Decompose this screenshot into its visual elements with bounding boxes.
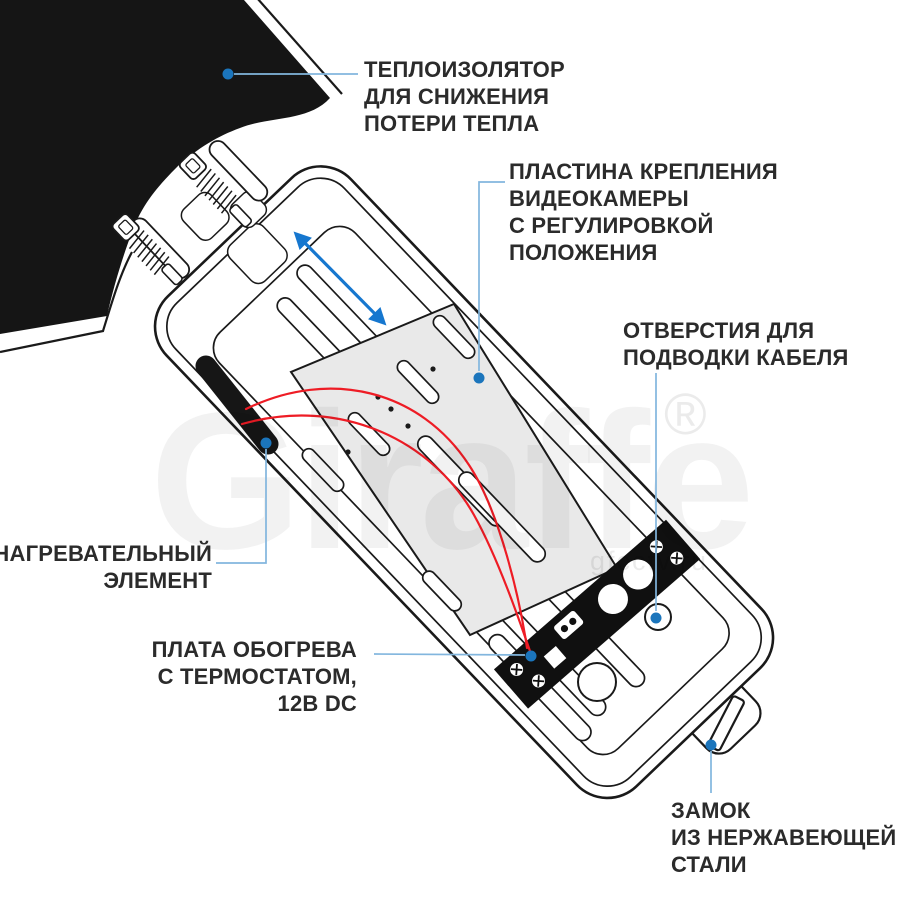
callout-dot <box>261 438 272 449</box>
label-lock: ЗАМОК ИЗ НЕРЖАВЕЮЩЕЙ СТАЛИ <box>671 797 896 878</box>
label-heating-element: НАГРЕВАТЕЛЬНЫЙ ЭЛЕМЕНТ <box>0 540 212 594</box>
callout-dot <box>651 613 662 624</box>
diagram-page: Giraffe ® gfcctv.ru ТЕПЛОИЗОЛЯТОР ДЛЯ СН… <box>0 0 900 900</box>
cap-bracket <box>178 189 233 244</box>
label-heater-board: ПЛАТА ОБОГРЕВА С ТЕРМОСТАТОМ, 12В DC <box>152 636 357 717</box>
label-mounting-plate: ПЛАСТИНА КРЕПЛЕНИЯ ВИДЕОКАМЕРЫ С РЕГУЛИР… <box>509 158 778 266</box>
callout-dot <box>223 69 234 80</box>
pilot-hole <box>430 366 435 371</box>
watermark-site: gfcctv.ru <box>590 546 708 576</box>
watermark: Giraffe ® gfcctv.ru <box>150 372 751 590</box>
callout-dot <box>474 373 485 384</box>
callout-dot <box>706 740 717 751</box>
watermark-registered: ® <box>664 382 707 447</box>
cable-hole <box>578 663 616 701</box>
label-insulator: ТЕПЛОИЗОЛЯТОР ДЛЯ СНИЖЕНИЯ ПОТЕРИ ТЕПЛА <box>364 56 565 137</box>
mounting-peg <box>206 137 271 204</box>
callout-dot <box>526 651 537 662</box>
leader-line <box>374 654 525 655</box>
label-cable-holes: ОТВЕРСТИЯ ДЛЯ ПОДВОДКИ КАБЕЛЯ <box>623 317 849 371</box>
